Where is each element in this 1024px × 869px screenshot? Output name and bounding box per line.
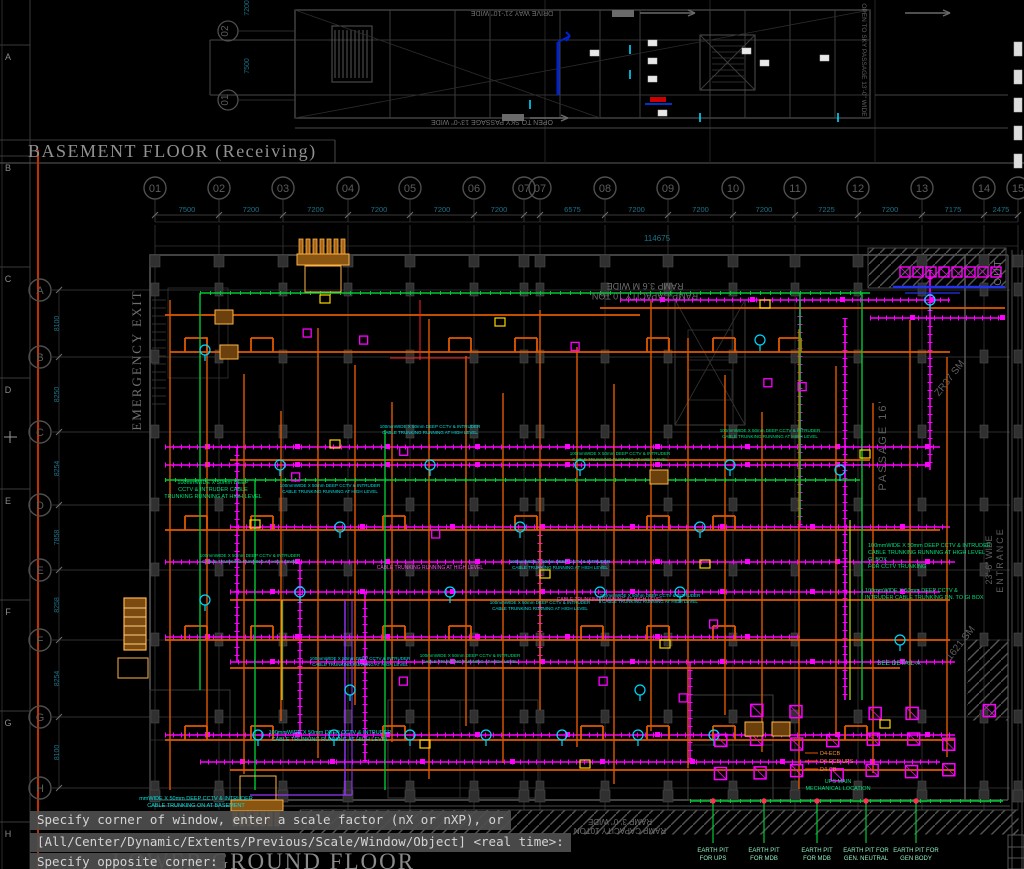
- dimension: 7858: [54, 530, 61, 546]
- see-detail-label: SEE DETAIL-A: [877, 660, 921, 667]
- grid-bubble: 06: [468, 183, 480, 195]
- trunking-note: 100mmWIDE X 50mm DEEP CCTV &: [865, 588, 958, 594]
- cctv-camera-icon: [200, 595, 210, 611]
- cctv-camera-icon: [481, 730, 491, 746]
- trunking-note: 100mmWIDE X 50mm DEEP CCTV & INTRUDER: [200, 553, 301, 558]
- trunking-note: CABLE TRUNKING RUNNING AT HIGH LEVEL: [282, 489, 378, 494]
- dimension: 8250: [54, 387, 61, 403]
- grid-bubble: 14: [978, 183, 990, 195]
- trunking-note: 100mmWIDE X 50mm DEEP CCTV & INTRUDER: [280, 483, 381, 488]
- ramp-bottom-label: RAMP CAPACITY 10TON: [574, 826, 667, 835]
- dimension: 6575: [564, 205, 581, 214]
- dimension: 8258: [54, 597, 61, 613]
- ramp-bottom-label: RAMP 3'-0" WIDE: [588, 817, 652, 826]
- grid-bubble: 08: [599, 183, 611, 195]
- ramp-label: RAMP CAPACITY 10 TON: [592, 291, 698, 301]
- grid-bubble: A: [36, 285, 44, 297]
- grid-bubble: 02: [213, 183, 225, 195]
- cctv-camera-icon: [200, 345, 210, 361]
- earth-pit-label: EARTH PIT: [801, 848, 833, 854]
- earth-pit-label: EARTH PIT FOR: [843, 848, 889, 854]
- svg-text:7200: 7200: [244, 0, 251, 16]
- grid-bubble: E: [36, 565, 43, 577]
- cctv-camera-icon: [755, 335, 765, 351]
- trunking-note: 100mmWIDE X 50mm DEEP CCTV & INTRUDER: [570, 451, 671, 456]
- dimension: 7175: [945, 205, 962, 214]
- grid-bubble: 07: [518, 183, 530, 195]
- red-line-layer: [390, 300, 470, 360]
- cctv-camera-icon: [633, 730, 643, 746]
- cctv-camera-icon: [345, 685, 355, 701]
- cctv-camera-icon: [709, 730, 719, 746]
- sheet-edge-letter: C: [5, 274, 12, 284]
- cctv-camera-icon: [895, 635, 905, 651]
- passage-label: PASSAGE 16': [877, 399, 889, 490]
- ups-main-label: MECHANICAL LOCATION: [805, 786, 870, 792]
- sheet-edge-letter: A: [5, 52, 11, 62]
- dimension: 7200: [434, 205, 451, 214]
- sheet-edge-letter: E: [5, 496, 11, 506]
- top-strip-plan: 020172007500DRIVE WAY 21'-10" WIDEOPEN T…: [210, 0, 1008, 128]
- grid-bubble: C: [36, 427, 44, 439]
- grid-bubble: G: [36, 712, 45, 724]
- autocad-viewport[interactable]: ABCDEFGH020172007500DRIVE WAY 21'-10" WI…: [0, 0, 1024, 869]
- command-line-prompt-2[interactable]: [All/Center/Dynamic/Extents/Previous/Sca…: [30, 833, 571, 852]
- sheet-edge-letter: D: [5, 385, 12, 395]
- earth-pit-label: EARTH PIT: [748, 848, 780, 854]
- panel-label: D4-ECB: [820, 751, 841, 757]
- trunking-note: GI BOX: [868, 557, 887, 563]
- dimension: 7200: [371, 205, 388, 214]
- trunking-note: CABLE TRUNKING RUNNING AT HIGH LEVEL: [382, 430, 478, 435]
- trunking-note: CABLE TRUNKING RUNNING AT HIGH LEVEL: [572, 457, 668, 462]
- out-label: OUT: [993, 258, 1004, 285]
- earth-pit-label: FOR MDB: [750, 856, 778, 862]
- grid-bubble: 10: [727, 183, 739, 195]
- dimension: 7200: [243, 205, 260, 214]
- trunking-note: INTRUDER CABLE TRUNKING DN. TO GI BOX: [865, 595, 984, 601]
- sheet-edge-letter: F: [5, 607, 11, 617]
- building-shell: [150, 248, 1018, 834]
- earth-pit-label: EARTH PIT: [697, 848, 729, 854]
- grid-bubble: 13: [916, 183, 928, 195]
- dimension: 7200: [756, 205, 773, 214]
- dimension: 8254: [54, 461, 61, 477]
- grid-bubble: 01: [149, 183, 161, 195]
- dimension: 7200: [491, 205, 508, 214]
- earth-pit-label: EARTH PIT FOR: [893, 848, 939, 854]
- grid-bubble: 03: [277, 183, 289, 195]
- cable-note: CABLE TRUNKING RUNNING AT HIGH LEVEL: [377, 565, 484, 571]
- trunking-note: 100mmWIDE X 50mm DEEP CCTV & INTRUDER: [868, 543, 991, 549]
- basement-floor-title: BASEMENT FLOOR (Receiving): [28, 141, 317, 162]
- yellow-fittings: [250, 295, 890, 768]
- trunking-note: 100mmWIDE X 50mm DEEP CCTV & INTRUDER: [269, 730, 392, 736]
- entrance-label: ENTRANCE: [995, 527, 1005, 593]
- earth-pit-label: FOR MDB: [803, 856, 831, 862]
- grid-bubble: B: [36, 352, 43, 364]
- trunking-note: 100mmWIDE X 50mm DEEP CCTV & INTRUDER: [310, 656, 411, 661]
- trunking-note: CABLE TRUNKING RUNNING AT HIGH LEVEL: [271, 737, 388, 743]
- sheet-edge-letter: G: [4, 718, 11, 728]
- trunking-note: 100mmWIDE X 50mm DEEP CCTV & INTRUDER: [380, 424, 481, 429]
- grid-bubble: D: [36, 500, 44, 512]
- trunking-note: TRUNKING RUNNING AT HIGH LEVEL: [164, 494, 262, 500]
- grid-bubble: 11: [789, 183, 800, 195]
- earth-pit-label: GEN BODY: [900, 856, 932, 862]
- overall-dimension: 114675: [644, 234, 671, 243]
- trunking-note: 100mmWIDE X 50mm DEEP CCTV & INTRUDER: [510, 559, 611, 564]
- purple-line-layer: [250, 600, 352, 795]
- emergency-exit-label: EMERGENCY EXIT: [129, 289, 144, 430]
- ups-main-label: UPS MAIN: [825, 779, 852, 785]
- dimension: 8254: [54, 671, 61, 687]
- ramp-label: RAMP 3.6 M WIDE: [607, 281, 684, 291]
- grid-bubble: 09: [662, 183, 674, 195]
- cable-note: CABLE TRUNKING RUNNING AT HIGH LEVEL: [557, 597, 664, 603]
- trunking-note: 100mmWIDE X 50mm DEEP CCTV & INTRUDER: [420, 653, 521, 658]
- trunking-note: CABLE TRUNKING RUNNING AT HIGH LEVEL: [868, 550, 985, 556]
- drawing-canvas: ABCDEFGH020172007500DRIVE WAY 21'-10" WI…: [0, 0, 1024, 869]
- trunking-note: CABLE TRUNKING RUNNING AT HIGH LEVEL: [312, 662, 408, 667]
- sheet-edge-letter: B: [5, 163, 11, 173]
- trunking-note: CABLE TRUNKING ON AT BASEMENT: [147, 803, 245, 809]
- panel-label: D4-CB: [820, 767, 837, 773]
- earth-pit-label: FOR UPS: [700, 856, 727, 862]
- dimension: 7500: [179, 205, 196, 214]
- trunking-note: 100mmWIDE X 50mm DEEP: [177, 480, 249, 486]
- cctv-camera-icon: [425, 460, 435, 476]
- dimension: 8100: [54, 316, 61, 332]
- trunking-note: CABLE TRUNKING RUNNING AT HIGH LEVEL: [512, 565, 608, 570]
- dimension: 7200: [628, 205, 645, 214]
- dimension: 7225: [818, 205, 835, 214]
- dimension: 7200: [882, 205, 899, 214]
- grid-bubble: H: [36, 783, 44, 795]
- grid-bubble: 05: [404, 183, 416, 195]
- grid-bubble: 07: [534, 183, 546, 195]
- grid-bubble: 04: [342, 183, 354, 195]
- grid-bubble: 12: [852, 183, 864, 195]
- area-label: ZR37 SM: [933, 358, 968, 398]
- trunking-note: CABLE TRUNKING RUNNING AT HIGH LEVEL: [422, 659, 518, 664]
- cctv-camera-icon: [635, 685, 645, 701]
- grid-bubble: 01: [220, 94, 231, 106]
- command-line-prompt-1[interactable]: Specify corner of window, enter a scale …: [30, 811, 511, 830]
- panel-label: D4-ECB-UPS: [820, 759, 854, 765]
- grid-bubble: F: [37, 635, 44, 647]
- trunking-note: CABLE TRUNKING RUNNING AT HIGH LEVEL: [202, 559, 298, 564]
- trunking-note: CABLE TRUNKING RUNNING AT HIGH LEVEL: [492, 606, 588, 611]
- dimension: 8100: [54, 745, 61, 761]
- cable-tray-layer: [165, 270, 1005, 764]
- open-sky-label-v: OPEN TO SKY PASSAGE 13'-0" WIDE: [860, 3, 867, 117]
- trunking-note: FOR CCTV TRUNKING: [868, 564, 926, 570]
- sheet-edge-letter: H: [5, 829, 12, 839]
- command-line-prompt-3[interactable]: Specify opposite corner:: [30, 853, 225, 869]
- trunking-note: mmWIDE X 50mm DEEP CCTV & INTRUDER: [139, 796, 253, 802]
- trunking-note: CCTV & INTRUDER CABLE: [178, 487, 248, 493]
- trunking-note: 100mmWIDE X 50mm DEEP CCTV & INTRUDER: [720, 428, 821, 433]
- drive-way-label: DRIVE WAY 21'-10" WIDE: [471, 9, 554, 16]
- dimension: 7200: [307, 205, 324, 214]
- svg-text:7500: 7500: [244, 58, 251, 74]
- camera-icons: [200, 295, 935, 746]
- earth-pit-label: GEN. NEUTRAL: [844, 856, 889, 862]
- dimension: 2475: [993, 205, 1010, 214]
- open-sky-label: OPEN TO SKY PASSAGE 13'-0" WIDE: [431, 118, 553, 125]
- grid-bubble: 02: [220, 25, 231, 37]
- grid-bubble: 15: [1012, 183, 1024, 195]
- trunking-note: CABLE TRUNKING RUNNING AT HIGH LEVEL: [722, 434, 818, 439]
- dimension: 7200: [692, 205, 709, 214]
